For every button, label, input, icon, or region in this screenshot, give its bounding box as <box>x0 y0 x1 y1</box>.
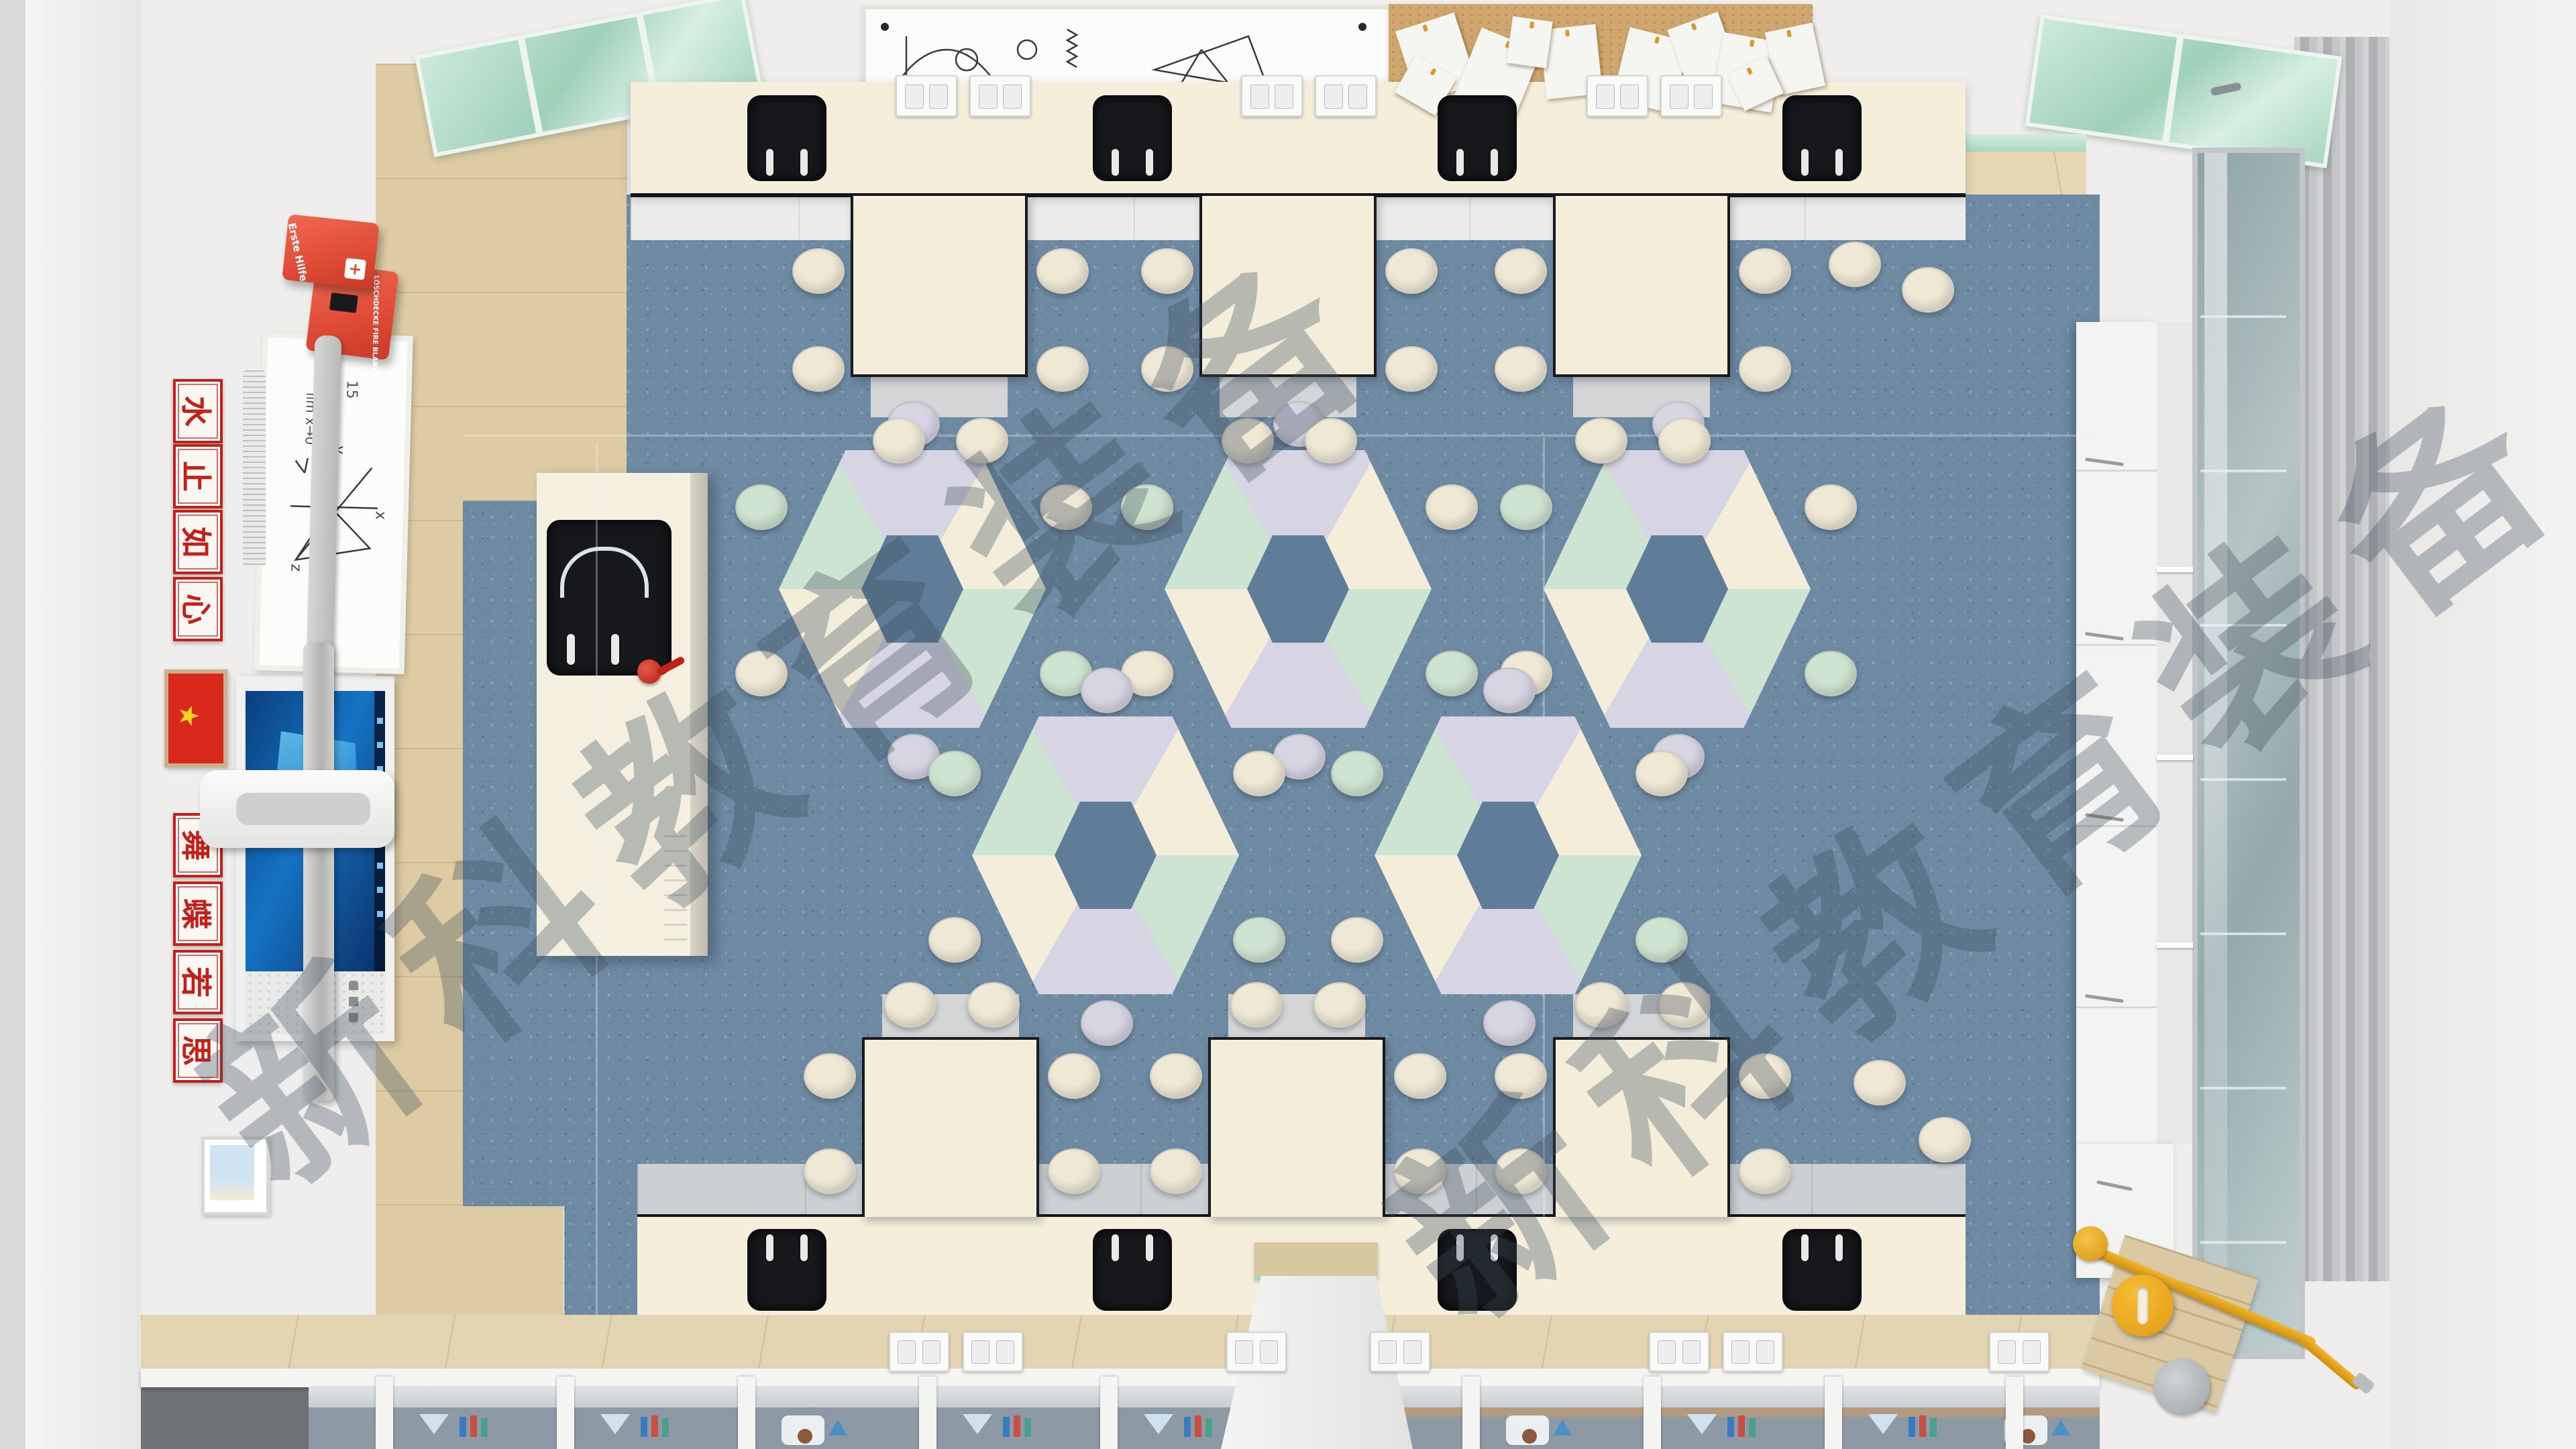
stool <box>1081 1000 1133 1046</box>
poster-illustration <box>1499 1410 1607 1446</box>
cabinet-door-seam <box>2076 470 2157 472</box>
first-aid-label: Erste Hilfe <box>286 222 310 282</box>
classroom-top-view: u = Um·sin ωt <box>0 0 2576 1449</box>
wall-outlet <box>1226 1332 1287 1372</box>
floor-seam <box>596 443 598 1315</box>
stool <box>967 982 1020 1028</box>
stool <box>1040 484 1092 530</box>
flag-star-icon: ★ <box>173 704 204 728</box>
gas-pipe-endcap <box>2351 1372 2375 1395</box>
plaque-character: 若 <box>176 967 220 998</box>
stool <box>1426 484 1478 530</box>
gas-valve-box <box>2112 1275 2173 1336</box>
window-mullion <box>1644 1377 1661 1449</box>
stool <box>1483 667 1536 713</box>
stool <box>1048 1148 1100 1194</box>
right-outer-wall <box>2390 0 2576 1449</box>
stool <box>1036 248 1089 294</box>
counter-sink <box>1093 95 1172 181</box>
top-workbench <box>1553 196 1730 377</box>
left-ac-unit <box>243 370 266 566</box>
stool <box>1150 1148 1202 1194</box>
counter-sink <box>1782 1229 1862 1311</box>
stool <box>1394 1053 1446 1099</box>
screen-mount-arm <box>200 770 394 848</box>
stool <box>956 418 1008 464</box>
left-wall <box>25 0 141 1449</box>
window-mullion <box>1100 1377 1118 1449</box>
console-hose <box>560 547 649 598</box>
poster-illustration <box>413 1410 520 1446</box>
cabinet-door-seam <box>2076 644 2157 646</box>
stool <box>1331 917 1383 963</box>
calligraphy-plaque-top: 心 <box>173 577 223 641</box>
door-pane-divider <box>2162 38 2184 142</box>
bottom-workbench <box>1208 1037 1385 1217</box>
stool <box>1919 1117 1971 1163</box>
left-outer-wall <box>0 0 25 1449</box>
stool <box>928 917 981 963</box>
stool <box>1739 346 1791 392</box>
axis-z-label: z <box>287 563 304 572</box>
wall-outlet <box>969 75 1031 117</box>
poster-illustration <box>1680 1410 1788 1446</box>
bottom-wood-floor <box>141 1315 2100 1374</box>
notice-content <box>210 1145 254 1200</box>
plaque-character: 心 <box>176 594 220 625</box>
glass-shelf-line <box>2200 470 2286 472</box>
counter-sink <box>1782 95 1862 181</box>
wall-outlet <box>1241 75 1303 117</box>
plaque-character: 思 <box>176 1035 220 1066</box>
cabinet-door-seam <box>2076 825 2157 827</box>
stool <box>1081 667 1133 713</box>
counter-sink <box>1093 1229 1172 1311</box>
national-flag: ★ <box>164 669 227 767</box>
pinned-paper <box>1506 16 1552 68</box>
window-mullion <box>919 1377 936 1449</box>
stool <box>1805 484 1857 530</box>
wall-outlet <box>1649 1332 1709 1372</box>
stool <box>1150 1053 1202 1099</box>
wall-outlet <box>896 75 957 117</box>
calligraphy-plaque-top: 如 <box>173 510 223 574</box>
glass-shelf-line <box>2200 1241 2286 1244</box>
calligraphy-plaque-top: 水 <box>173 379 223 443</box>
stool <box>804 1053 856 1099</box>
wall-outlet <box>1315 75 1377 117</box>
top-workbench <box>851 196 1028 377</box>
wall-junction-disc <box>2153 1358 2210 1415</box>
stool <box>928 751 981 796</box>
stool <box>1048 1053 1100 1099</box>
mount-arm-slot <box>236 793 370 825</box>
wall-outlet <box>1660 75 1722 117</box>
stool <box>1305 418 1357 464</box>
stool <box>1658 418 1711 464</box>
console-vent-lines <box>664 835 687 943</box>
counter-sink <box>1438 95 1517 181</box>
stool <box>735 484 788 530</box>
console-side-shadow <box>690 473 708 956</box>
window-mullion <box>738 1377 755 1449</box>
stool <box>1805 651 1857 696</box>
axis-x-label: x <box>372 511 388 521</box>
poster-illustration <box>1862 1410 1969 1446</box>
gas-pipe-flange <box>2073 1226 2108 1261</box>
glass-shelf-line <box>2200 624 2286 627</box>
stool <box>1495 1148 1547 1194</box>
wall-outlet <box>1587 75 1648 117</box>
door-handle <box>2210 82 2241 96</box>
poster-illustration <box>594 1410 701 1446</box>
value-note: 15 <box>343 380 360 399</box>
stool <box>1230 982 1283 1028</box>
console-sink <box>547 520 672 676</box>
glass-shelf-line <box>2200 778 2286 781</box>
calligraphy-plaque-bottom: 思 <box>173 1018 223 1083</box>
small-notice-frame <box>201 1136 270 1216</box>
plaque-character: 如 <box>176 527 220 557</box>
stool <box>735 651 788 696</box>
stool <box>1658 982 1711 1028</box>
door-pane-divider <box>518 38 543 133</box>
calligraphy-plaque-bottom: 若 <box>173 950 223 1014</box>
stool <box>1854 1060 1906 1106</box>
bottomleft-wood-step <box>462 1204 563 1316</box>
stool <box>1385 346 1438 392</box>
counter-sink <box>747 95 826 181</box>
stool <box>1233 917 1285 963</box>
window-mullion <box>557 1377 574 1449</box>
stool <box>1495 248 1547 294</box>
wall-outlet <box>1989 1332 2049 1372</box>
stool <box>1635 917 1688 963</box>
console-faucet <box>611 634 619 665</box>
fire-blanket-slot <box>329 292 358 313</box>
top-workbench <box>1199 196 1377 377</box>
poster-illustration <box>956 1410 1063 1446</box>
stool <box>1495 346 1547 392</box>
wall-outlet <box>963 1332 1023 1372</box>
stool <box>873 418 925 464</box>
glass-shelf-line <box>2200 1087 2286 1089</box>
stool <box>1036 346 1089 392</box>
right-glass-display-cabinet <box>2192 148 2305 1359</box>
window-mullion <box>1825 1377 1842 1449</box>
stool <box>1331 751 1383 796</box>
stool <box>1121 484 1173 530</box>
wall-outlet <box>889 1332 949 1372</box>
poster-illustration <box>775 1410 882 1446</box>
stool <box>884 982 936 1028</box>
stool <box>1739 248 1791 294</box>
calligraphy-plaque-top: 止 <box>173 444 223 508</box>
open-shelf-board <box>2157 755 2193 760</box>
wall-outlet <box>1370 1332 1430 1372</box>
bottom-workbench <box>1553 1037 1730 1217</box>
cabinet-door-seam <box>2076 1006 2157 1008</box>
stool <box>1739 1148 1791 1194</box>
stool <box>1575 418 1627 464</box>
gas-valve-slot <box>2137 1287 2148 1324</box>
right-wall-cabinets <box>2076 322 2157 1144</box>
stool <box>1829 241 1881 287</box>
stool <box>1483 1000 1536 1046</box>
stool <box>1394 1148 1446 1194</box>
stool <box>1495 1053 1547 1099</box>
glass-reflection <box>2204 153 2227 1354</box>
calligraphy-plaque-bottom: 蝶 <box>173 881 223 946</box>
stool <box>1385 248 1438 294</box>
open-shelf-board <box>2157 943 2193 948</box>
stool <box>1635 751 1688 796</box>
stool <box>792 346 845 392</box>
stool <box>1233 751 1285 796</box>
glass-shelf-line <box>2200 932 2286 935</box>
window-mullion <box>1462 1377 1480 1449</box>
open-shelf-board <box>2157 567 2193 572</box>
stool <box>1426 651 1478 696</box>
window-mullion <box>376 1377 393 1449</box>
panel-buttons <box>349 981 358 1022</box>
right-open-shelf <box>2157 322 2193 1144</box>
right-corrugated-panel <box>2294 37 2390 1281</box>
plaque-character: 水 <box>176 396 220 427</box>
counter-sink <box>1438 1229 1517 1311</box>
wall-rail <box>303 643 334 1102</box>
plaque-character: 止 <box>176 461 220 492</box>
bottom-column-cap <box>1254 1242 1378 1280</box>
stool <box>1222 418 1274 464</box>
stool <box>804 1148 856 1194</box>
window-mullion <box>2006 1377 2023 1449</box>
first-aid-box: Erste Hilfe + <box>282 214 379 289</box>
console-faucet <box>567 634 575 665</box>
bottom-workbench <box>862 1037 1039 1217</box>
teacher-console <box>537 473 708 956</box>
stool <box>1902 267 1954 313</box>
first-aid-cross-icon: + <box>344 258 366 280</box>
window-top-rail <box>141 1368 2100 1387</box>
stool <box>1141 248 1193 294</box>
stool <box>792 248 845 294</box>
plaque-character: 蝶 <box>176 898 220 929</box>
cabinet-handle <box>2096 1180 2133 1191</box>
wall-outlet <box>1723 1332 1783 1372</box>
glass-shelf-line <box>2200 315 2286 318</box>
stool <box>1313 982 1366 1028</box>
counter-sink <box>747 1229 826 1311</box>
stool <box>1500 484 1552 530</box>
stool <box>1575 982 1627 1028</box>
stool <box>1141 346 1193 392</box>
stool <box>1739 1053 1791 1099</box>
